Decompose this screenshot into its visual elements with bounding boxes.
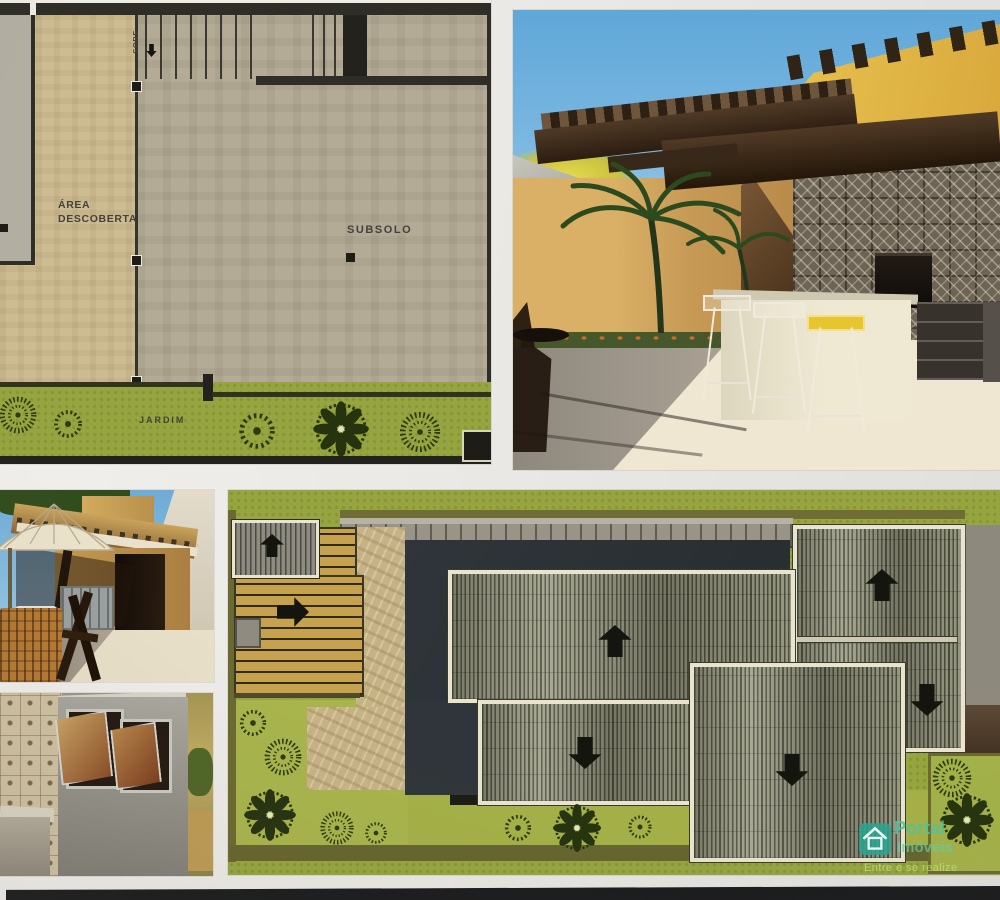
stool-leg <box>738 307 751 400</box>
fluffy-tree-icon <box>0 394 39 436</box>
garden-edge-right <box>212 392 491 397</box>
stool-leg <box>702 307 715 400</box>
roof-stub <box>450 795 478 805</box>
background-chair <box>188 811 213 871</box>
stair-steps <box>145 15 255 79</box>
wall-marker <box>131 81 142 92</box>
stool-leg <box>792 314 806 413</box>
watermark-brand-bottom: Imóveis <box>897 839 953 856</box>
deck-planter <box>235 618 261 648</box>
bar-stool <box>703 295 751 400</box>
stool-seat <box>807 315 865 331</box>
subsolo-label: SUBSOLO <box>347 224 412 236</box>
bottom-wall <box>0 456 491 464</box>
shrub-ring-tree-icon <box>501 811 535 845</box>
fluffy-tree-icon <box>318 809 356 847</box>
top-wall <box>36 3 491 15</box>
shrub-ring-tree-icon <box>236 706 270 740</box>
concrete-bench <box>0 817 50 876</box>
ornamental-flower-tree-icon <box>552 803 602 853</box>
flat-roof-slab-arm <box>405 700 480 795</box>
shrub-ring-tree-icon <box>234 408 280 454</box>
stone-path-lower <box>307 707 405 790</box>
garden-edge-left <box>0 382 208 387</box>
watermark-brand-top: Portal <box>894 818 945 839</box>
corner-structure <box>462 430 491 462</box>
open-window-pane <box>54 710 113 785</box>
side-pavement <box>965 525 1000 705</box>
bar-stool <box>753 302 805 414</box>
stool-seat <box>753 302 805 318</box>
basement-floor-plan: SOBE ÁREA DESCOBERTA SUBSOLO JARDIM <box>0 0 491 464</box>
shrub-ring-tree-icon <box>362 819 390 847</box>
stool-seat <box>703 295 751 311</box>
wall-marker <box>131 255 142 266</box>
dining-table <box>513 328 569 342</box>
jardim-label: JARDIM <box>139 415 185 425</box>
ornamental-flower-tree-icon <box>243 788 297 842</box>
side-room-bottom-wall <box>0 261 35 265</box>
top-wall-left <box>0 3 30 15</box>
house-logo-icon <box>858 822 892 856</box>
wooden-slat-chair <box>0 608 62 682</box>
side-room-wall <box>31 15 35 265</box>
roof-ridge-line <box>797 637 957 642</box>
agency-watermark: Portal Imóveis Entre e se realize <box>858 810 1000 882</box>
stair-landing-steps <box>312 15 346 79</box>
table-edge-band <box>6 886 1000 900</box>
wall-marker <box>346 253 355 262</box>
stool-leg <box>752 314 766 413</box>
cabinet-drawers <box>917 302 983 380</box>
fluffy-tree-icon <box>397 409 443 455</box>
shrub-ring-tree-icon <box>625 812 655 842</box>
stool-crossbar <box>707 382 747 384</box>
open-window-pane <box>110 722 162 790</box>
patio-umbrella-render <box>0 490 214 682</box>
stool-crossbar <box>757 396 801 398</box>
cabinet-side <box>983 302 1000 382</box>
photographed-project-sheet: { "floor_plan": { "labels": { "sobe": "S… <box>0 0 1000 900</box>
ornamental-flower-tree-icon <box>312 400 370 458</box>
stair-wall-column <box>343 15 367 81</box>
stair-lower-wall <box>256 76 491 85</box>
stool-crossbar <box>811 415 861 417</box>
wall-windows-render <box>0 693 213 876</box>
background-foliage <box>186 748 213 796</box>
wall-marker <box>0 224 8 232</box>
shrub-ring-tree-icon <box>50 406 86 442</box>
sobe-label: SOBE <box>131 30 140 54</box>
pergola-gourmet-render <box>513 10 1000 470</box>
fluffy-tree-icon <box>262 736 304 778</box>
area-descoberta-label: ÁREA DESCOBERTA <box>58 199 137 226</box>
folding-chair <box>58 590 102 682</box>
watermark-tagline: Entre e se realize <box>864 862 958 874</box>
deck-edge <box>234 693 360 698</box>
bar-stool-yellow <box>807 315 865 433</box>
